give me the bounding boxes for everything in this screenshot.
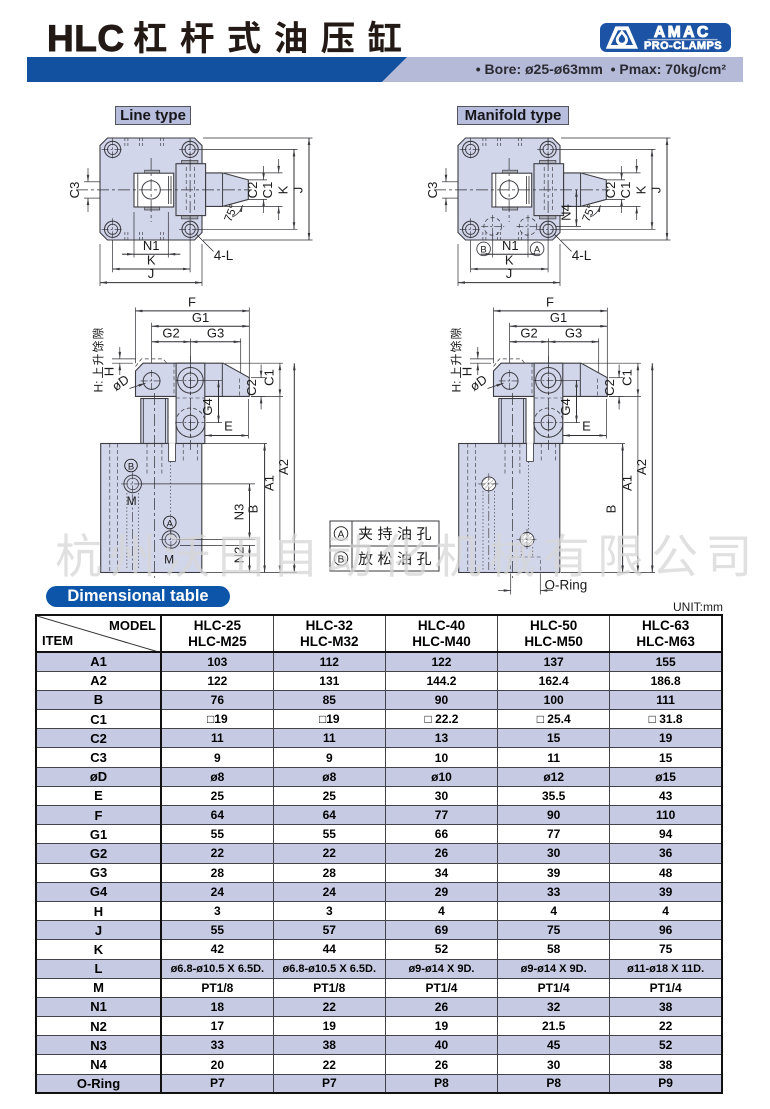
- svg-text:G2: G2: [520, 325, 537, 340]
- svg-text:E: E: [582, 419, 591, 434]
- svg-text:N4: N4: [559, 204, 574, 221]
- svg-text:G2: G2: [162, 325, 179, 340]
- svg-text:F: F: [188, 295, 196, 310]
- svg-text:H:: H:: [92, 381, 106, 393]
- svg-text:C3: C3: [67, 182, 82, 199]
- svg-text:E: E: [224, 419, 233, 434]
- svg-text:G3: G3: [565, 325, 582, 340]
- svg-text:A2: A2: [276, 459, 291, 475]
- svg-text:G1: G1: [192, 310, 209, 325]
- svg-text:C1: C1: [618, 182, 633, 199]
- svg-text:B: B: [128, 461, 134, 472]
- svg-text:N1: N1: [143, 238, 160, 253]
- svg-text:C2: C2: [245, 182, 260, 199]
- svg-text:C3: C3: [425, 182, 440, 199]
- svg-text:K: K: [276, 185, 291, 194]
- svg-text:H:: H:: [450, 381, 464, 393]
- svg-text:G1: G1: [550, 310, 567, 325]
- svg-text:B: B: [246, 505, 261, 514]
- svg-text:A1: A1: [620, 475, 635, 491]
- svg-text:O-Ring: O-Ring: [545, 578, 588, 593]
- svg-text:F: F: [546, 295, 554, 310]
- svg-text:M: M: [127, 494, 137, 508]
- svg-text:G4: G4: [200, 398, 215, 415]
- svg-text:G3: G3: [207, 325, 224, 340]
- svg-text:J: J: [649, 187, 664, 194]
- svg-text:C1: C1: [260, 182, 275, 199]
- svg-text:4-L: 4-L: [214, 248, 234, 263]
- svg-text:A1: A1: [262, 475, 277, 491]
- svg-text:J: J: [148, 266, 155, 281]
- svg-text:A2: A2: [634, 459, 649, 475]
- svg-text:N1: N1: [502, 238, 519, 253]
- svg-text:K: K: [634, 185, 649, 194]
- svg-text:4-L: 4-L: [572, 248, 592, 263]
- svg-text:J: J: [506, 266, 513, 281]
- svg-text:C1: C1: [262, 369, 277, 386]
- svg-text:A: A: [167, 518, 174, 529]
- svg-text:N3: N3: [232, 504, 247, 521]
- svg-text:B: B: [480, 245, 486, 256]
- svg-text:G4: G4: [558, 398, 573, 415]
- svg-text:B: B: [604, 505, 619, 514]
- svg-text:A: A: [534, 245, 541, 256]
- svg-text:C2: C2: [602, 379, 617, 396]
- svg-text:C2: C2: [244, 379, 259, 396]
- svg-text:C2: C2: [603, 182, 618, 199]
- svg-text:C1: C1: [620, 369, 635, 386]
- svg-text:H: H: [102, 367, 117, 376]
- svg-text:H: H: [460, 367, 475, 376]
- svg-text:J: J: [291, 187, 306, 194]
